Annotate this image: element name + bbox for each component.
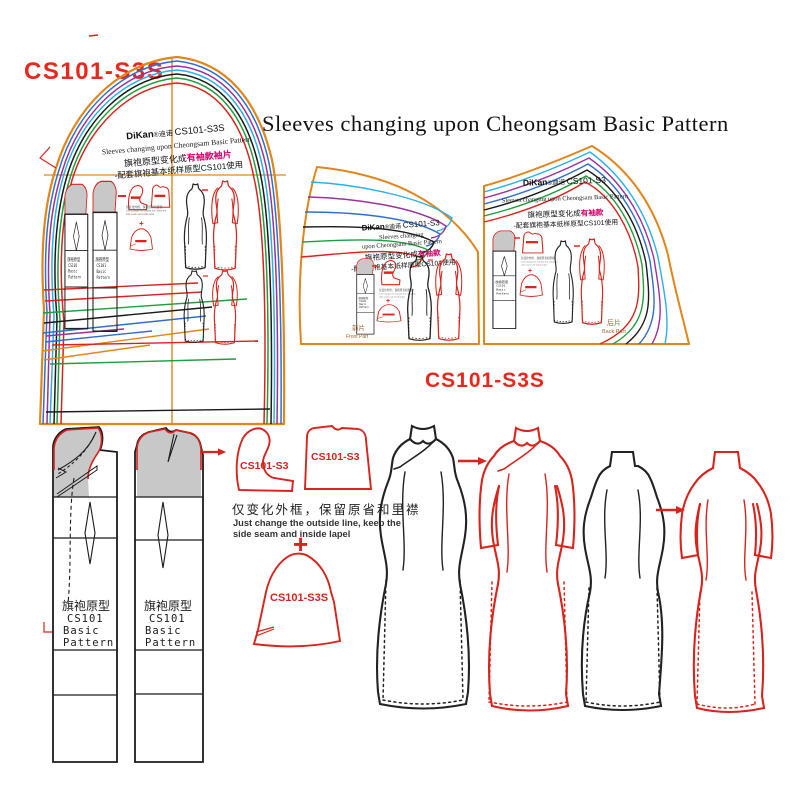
cn-line1: 旗袍原型变化成: [527, 208, 581, 220]
changed-back-bodice-code: CS101-S3: [311, 451, 360, 463]
sleeve-outline-blue: [43, 61, 281, 424]
sleeve-outline-orange: [40, 57, 284, 424]
piece-code: CS101-S3S: [174, 123, 225, 138]
mini-plus: +: [528, 268, 532, 275]
new-sleeve-code: CS101-S3S: [270, 592, 328, 604]
arrow-right-icon: [458, 457, 487, 465]
brand-name: DiKan: [523, 177, 548, 188]
brand-name: DiKan: [126, 129, 154, 142]
changed-front-bodice-code: CS101-S3: [240, 460, 289, 472]
note-cn: 仅变化外框，保留原省和里襟: [232, 502, 421, 517]
back-label-cn: 后片: [607, 318, 621, 327]
mini-note-cn: 仅变化外框，保留原省和里襟: [379, 288, 413, 292]
basic-block-back: 旗袍原型 CS101 Basic Pattern: [135, 428, 203, 762]
front-label-cn: 前片: [352, 323, 365, 332]
dress-front-sleeved: [480, 428, 575, 711]
back-pattern-piece: DiKan®迪诺 CS101-S3 Sleeves changing upon …: [484, 146, 689, 344]
note-en-2: side seam and inside lapel: [233, 529, 350, 539]
block-back-label-basic: Basic: [145, 625, 182, 637]
arrow-right-icon: [200, 448, 226, 455]
mini-note-cn: 仅变化外框，保留原省和里襟: [126, 205, 163, 209]
mini-plus: +: [139, 219, 144, 228]
sleeve-hem-lines: [42, 283, 270, 412]
mini-note-en2: side seam and inside lapel: [521, 264, 547, 266]
mini-note-en1: Just change the outside line, keep the: [379, 292, 417, 295]
sleeve-piece-title: DiKan®迪诺 CS101-S3S Sleeves changing upon…: [100, 121, 254, 182]
mini-plus: +: [386, 298, 390, 305]
mini-note-en2: side seam and inside lapel: [126, 213, 155, 216]
block-front-label-pattern: Pattern: [63, 637, 114, 649]
cn-line1-highlight: 有袖款: [417, 247, 441, 259]
stray-mark: [89, 35, 98, 36]
mini-note-cn: 仅变化外框，保留原省和里襟: [521, 256, 555, 260]
dress-front-sleeveless: [377, 426, 469, 709]
back-label-en: Back Part: [602, 329, 626, 335]
sleeve-outline-purple: [47, 66, 278, 424]
brand-suffix: ®迪诺: [547, 177, 567, 187]
block-back-label-pattern: Pattern: [145, 637, 196, 649]
block-back-label-code: CS101: [149, 613, 186, 625]
brand-suffix: ®迪诺: [153, 128, 175, 139]
dress-back-sleeveless: [582, 452, 665, 710]
dress-back-sleeved: [681, 452, 773, 712]
front-label-en: Front Part: [346, 334, 369, 340]
mini-note-en2: side seam and inside lapel: [379, 296, 405, 298]
brand-name: DiKan: [361, 222, 385, 233]
svg-text:旗袍原型变化成有袖款: 旗袍原型变化成有袖款: [527, 207, 604, 220]
basic-block-front: 旗袍原型 CS101 Basic Pattern: [44, 427, 117, 762]
block-back-label-cn: 旗袍原型: [144, 598, 192, 613]
sleeve-mini-scene: 仅变化外框，保留原省和里襟 Just change the outside li…: [65, 181, 238, 344]
sleeve-pattern-piece: DiKan®迪诺 CS101-S3S Sleeves changing upon…: [40, 57, 286, 424]
cn-line1-highlight: 有袖款: [580, 207, 604, 218]
front-pattern-piece: DiKan®迪诺 CS101-S3 Sleeves changing upon …: [300, 167, 479, 344]
page-title: Sleeves changing upon Cheongsam Basic Pa…: [262, 111, 729, 136]
sleeve-outline-cyan: [50, 70, 275, 424]
mini-note-en1: Just change the outside line, keep the: [521, 260, 559, 263]
brand-suffix: ®迪诺: [384, 222, 403, 231]
note-en-1: Just change the outside line, keep the: [233, 518, 401, 528]
piece-code: CS101-S3: [402, 218, 440, 230]
svg-text:DiKan®迪诺 CS101-S3: DiKan®迪诺 CS101-S3: [523, 175, 607, 188]
block-front-label-basic: Basic: [63, 625, 100, 637]
code-top-left: CS101-S3S: [24, 58, 164, 85]
block-front-label-cn: 旗袍原型: [62, 598, 110, 613]
block-front-label-code: CS101: [67, 613, 104, 625]
back-mini-scene: 仅变化外框，保留原省和里襟 Just change the outside li…: [493, 231, 604, 329]
piece-code: CS101-S3: [566, 175, 606, 186]
pattern-diagram: 旗袍原型 CS101 Basic Pattern: [0, 0, 800, 800]
code-center: CS101-S3S: [425, 369, 545, 392]
